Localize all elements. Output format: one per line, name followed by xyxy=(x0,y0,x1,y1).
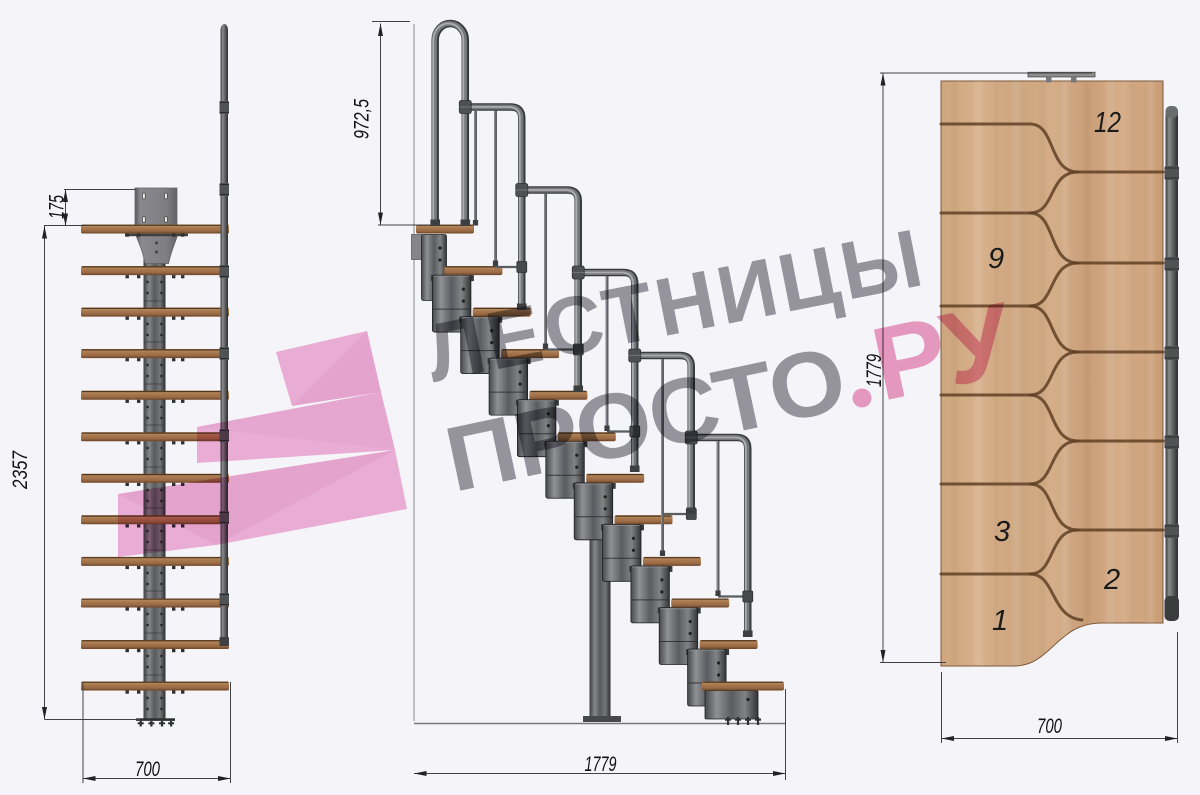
svg-text:175: 175 xyxy=(46,195,69,219)
svg-text:700: 700 xyxy=(135,758,160,781)
svg-text:700: 700 xyxy=(1037,715,1062,738)
svg-text:2357: 2357 xyxy=(9,450,32,490)
svg-text:972,5: 972,5 xyxy=(351,99,374,139)
svg-text:3: 3 xyxy=(994,516,1010,548)
svg-text:1779: 1779 xyxy=(585,753,617,776)
svg-text:9: 9 xyxy=(988,243,1004,275)
svg-text:12: 12 xyxy=(1094,107,1121,139)
svg-text:1: 1 xyxy=(992,605,1008,637)
svg-text:2: 2 xyxy=(1103,564,1120,596)
